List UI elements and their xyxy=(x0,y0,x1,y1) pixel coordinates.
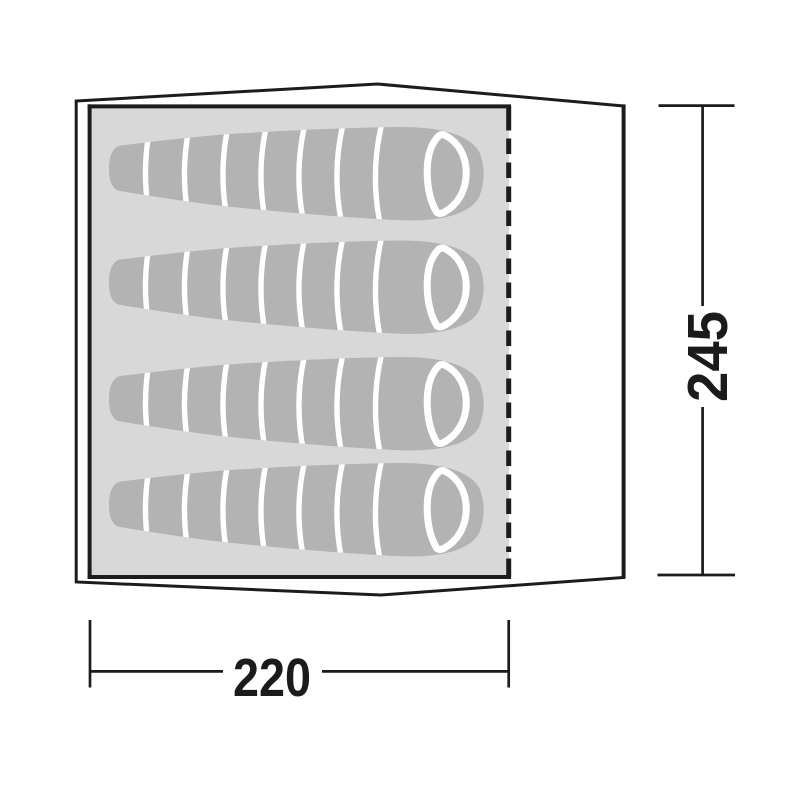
svg-text:220: 220 xyxy=(233,648,311,708)
svg-text:245: 245 xyxy=(676,311,740,402)
